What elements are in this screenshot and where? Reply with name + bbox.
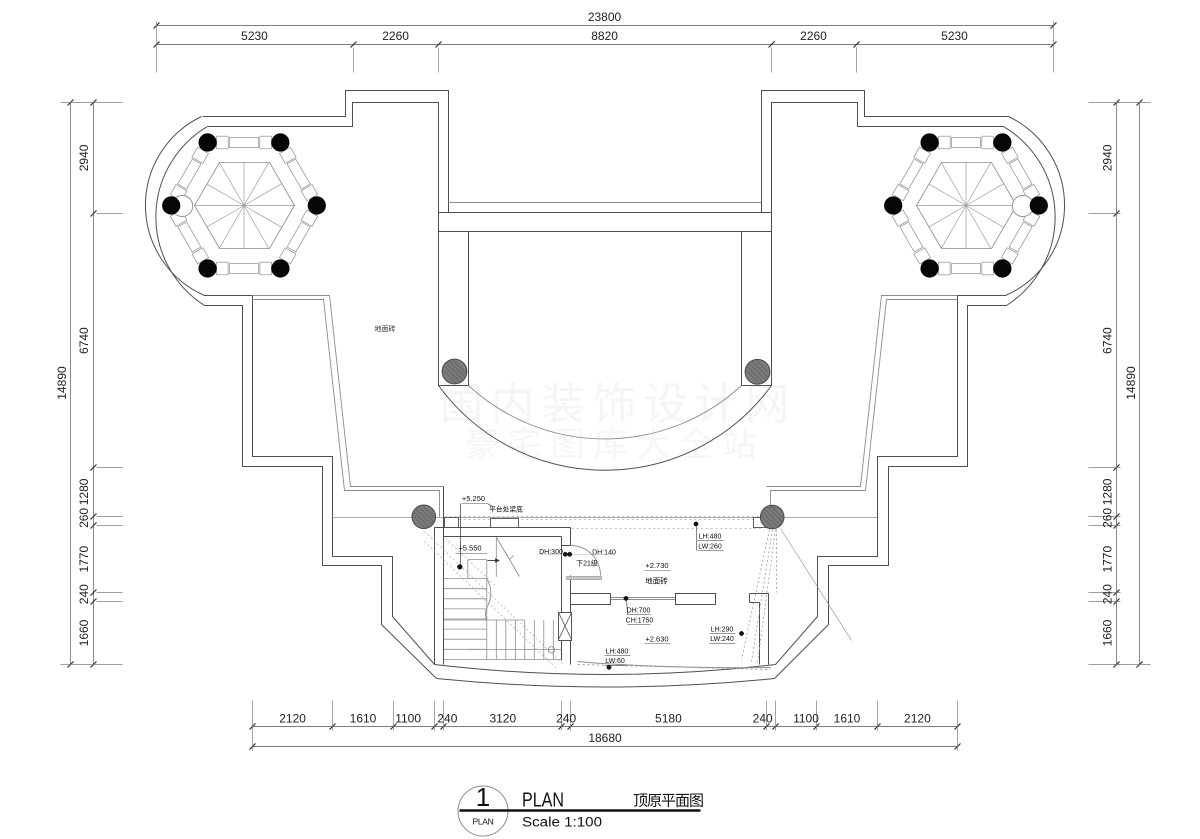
svg-text:240: 240 (753, 712, 773, 726)
svg-text:1770: 1770 (77, 546, 91, 573)
svg-text:+5.250: +5.250 (462, 494, 485, 503)
svg-text:5180: 5180 (655, 712, 682, 726)
svg-text:平台处梁底: 平台处梁底 (489, 505, 523, 514)
svg-text:下21级: 下21级 (576, 559, 598, 568)
svg-text:5230: 5230 (241, 29, 268, 43)
svg-text:2120: 2120 (904, 712, 931, 726)
svg-text:14890: 14890 (1124, 366, 1138, 400)
svg-text:1660: 1660 (1101, 619, 1115, 646)
svg-text:+2.730: +2.730 (645, 561, 668, 570)
svg-text:LH:480: LH:480 (606, 649, 629, 656)
svg-text:1610: 1610 (834, 712, 861, 726)
svg-text:LW:60: LW:60 (605, 658, 625, 665)
svg-text:DH:300: DH:300 (539, 549, 563, 556)
svg-text:2940: 2940 (77, 144, 91, 171)
svg-text:DH:140: DH:140 (592, 550, 616, 557)
svg-text:1770: 1770 (1101, 546, 1115, 573)
svg-text:1610: 1610 (350, 712, 377, 726)
svg-text:Scale 1:100: Scale 1:100 (522, 815, 602, 830)
svg-text:260: 260 (77, 508, 91, 528)
svg-text:1: 1 (476, 782, 490, 812)
svg-text:18680: 18680 (588, 731, 622, 745)
svg-text:1280: 1280 (1101, 478, 1115, 505)
svg-text:6740: 6740 (77, 327, 91, 354)
svg-text:+5.550: +5.550 (458, 544, 481, 553)
svg-text:LH:290: LH:290 (711, 627, 734, 634)
svg-text:5230: 5230 (941, 29, 968, 43)
svg-text:CH:1750: CH:1750 (626, 617, 654, 624)
svg-text:PLAN: PLAN (522, 790, 564, 812)
svg-text:3120: 3120 (489, 712, 516, 726)
svg-text:240: 240 (437, 712, 457, 726)
svg-text:1100: 1100 (793, 712, 819, 726)
svg-text:2260: 2260 (382, 29, 409, 43)
svg-text:1100: 1100 (395, 712, 421, 726)
svg-text:8820: 8820 (591, 29, 618, 43)
svg-text:240: 240 (556, 712, 576, 726)
svg-text:LW:240: LW:240 (710, 636, 734, 643)
svg-text:260: 260 (1101, 508, 1115, 528)
svg-text:+2.630: +2.630 (645, 635, 668, 644)
svg-text:地面砖: 地面砖 (375, 324, 396, 333)
svg-text:DH:700: DH:700 (627, 608, 651, 615)
svg-text:240: 240 (1101, 584, 1115, 604)
svg-text:LH:480: LH:480 (699, 534, 722, 541)
svg-text:23800: 23800 (588, 10, 622, 24)
svg-text:PLAN: PLAN (472, 817, 493, 827)
svg-text:240: 240 (77, 584, 91, 604)
svg-text:1660: 1660 (77, 619, 91, 646)
svg-text:2260: 2260 (800, 29, 827, 43)
svg-text:14890: 14890 (55, 366, 69, 400)
svg-text:LW:260: LW:260 (698, 544, 722, 551)
svg-text:2120: 2120 (279, 712, 306, 726)
svg-text:顶原平面图: 顶原平面图 (633, 793, 703, 810)
svg-text:豪宅图库大全站: 豪宅图库大全站 (465, 426, 766, 464)
svg-text:6740: 6740 (1101, 327, 1115, 354)
svg-text:1280: 1280 (77, 478, 91, 505)
svg-text:2940: 2940 (1101, 144, 1115, 171)
svg-text:地面砖: 地面砖 (645, 576, 668, 586)
